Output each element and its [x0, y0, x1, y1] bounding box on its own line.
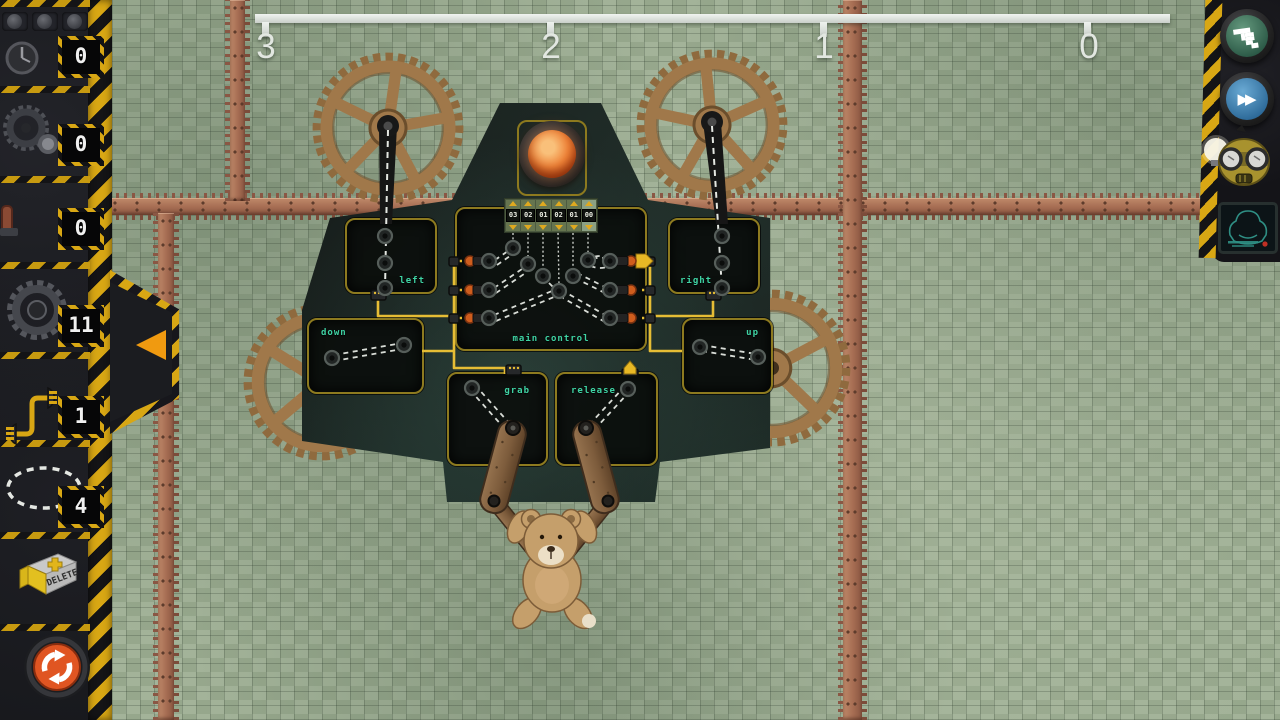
knob-icon	[62, 12, 88, 31]
slot-count-value: 0	[75, 132, 88, 156]
slot-counter[interactable]: 11	[58, 305, 104, 347]
left-box-chain	[378, 229, 392, 295]
game-stage: left right down up main control grab rel…	[0, 0, 1280, 720]
nut[interactable]	[465, 381, 479, 395]
ruler-bar	[255, 14, 1170, 23]
divider	[0, 176, 90, 183]
slot-count-value: 0	[75, 44, 88, 68]
nut[interactable]	[325, 351, 339, 365]
nut[interactable]	[751, 350, 765, 364]
machine-detail-layer	[0, 0, 1280, 720]
run-button[interactable]	[1220, 9, 1274, 63]
slot-count-value: 11	[68, 313, 93, 337]
knob-icon	[32, 12, 58, 31]
ruler-mark-0: 0	[1067, 27, 1111, 67]
nut[interactable]	[693, 340, 707, 354]
slot-counter[interactable]: 4	[58, 486, 104, 528]
divider	[0, 532, 90, 539]
collapse-left-arrow-icon	[136, 330, 166, 360]
ruler-mark-1: 1	[802, 27, 846, 67]
slot-count-value: 4	[75, 494, 88, 518]
restart-button[interactable]	[22, 632, 92, 702]
slot-counter[interactable]: 0	[58, 208, 104, 250]
toolbar-hazard-edge	[88, 0, 112, 720]
slot-counter[interactable]: 0	[58, 124, 104, 166]
hand-cursor-icon	[1232, 21, 1262, 51]
knob-icon	[2, 12, 28, 31]
divider	[0, 86, 90, 93]
parts-toolbar: 0 0 0 11 1	[0, 0, 112, 720]
small-gear-icon[interactable]	[0, 98, 64, 162]
goal-screen[interactable]	[1218, 202, 1278, 254]
robot-character[interactable]	[1198, 124, 1280, 198]
slot-count-value: 1	[75, 404, 88, 428]
ruler-mark-3: 3	[244, 27, 288, 67]
divider	[0, 624, 90, 631]
linkage-rods	[334, 343, 756, 429]
nut[interactable]	[397, 338, 411, 352]
main-control-linkage	[482, 233, 617, 325]
lever-icon[interactable]	[0, 198, 30, 242]
timer-gauge-icon[interactable]	[4, 40, 40, 76]
divider	[0, 352, 90, 359]
slot-counter[interactable]: 0	[58, 36, 104, 78]
fast-forward-button[interactable]: ▶▶	[1220, 72, 1274, 126]
delete-eraser-icon[interactable]: DELETE	[12, 548, 84, 612]
nut[interactable]	[621, 382, 635, 396]
divider	[0, 0, 90, 7]
ruler-mark-2: 2	[529, 27, 573, 67]
teddy-bear	[503, 507, 601, 633]
slot-count-value: 0	[75, 216, 88, 240]
divider	[0, 262, 90, 269]
goal-silhouette-icon	[1221, 205, 1275, 251]
fast-forward-icon: ▶▶	[1237, 90, 1256, 108]
slot-counter[interactable]: 1	[58, 396, 104, 438]
right-box-chain	[715, 229, 729, 295]
wire-connector-icon[interactable]	[2, 378, 62, 448]
